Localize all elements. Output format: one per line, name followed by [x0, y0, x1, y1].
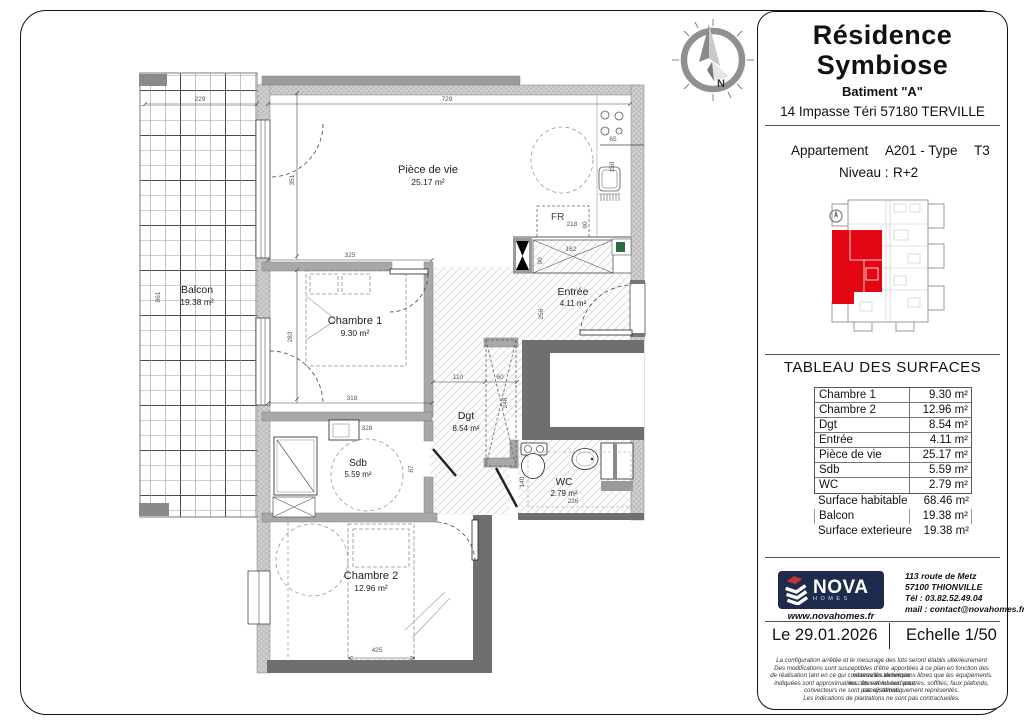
dim-318: 318: [347, 395, 358, 402]
dim-90a: 90: [537, 257, 544, 265]
dim-60: 60: [496, 374, 504, 381]
summary-value: 19.38 m²: [909, 524, 972, 539]
surface-table-body: Chambre 19.30 m² Chambre 212.96 m² Dgt8.…: [814, 387, 972, 494]
summary-row: Surface habitable68.46 m²: [814, 494, 972, 509]
green-unit-marker: [616, 242, 625, 252]
summary-value: 68.46 m²: [909, 494, 972, 509]
disclaimer-line: convecteurs ne sont pas systématiquement…: [766, 687, 997, 695]
room-area-cell: 2.79 m²: [909, 478, 971, 493]
divider: [889, 623, 890, 649]
dim-283: 283: [287, 331, 294, 342]
room-name-cell: Chambre 1: [815, 388, 909, 402]
room-name-cell: Entrée: [815, 433, 909, 447]
summary-value: 19.38 m²: [909, 509, 971, 524]
table-row: Pièce de vie25.17 m²: [815, 448, 971, 463]
room-area-piece-de-vie: 25.17 m²: [411, 177, 445, 187]
divider: [765, 125, 1000, 126]
dim-90b: 90: [582, 221, 589, 229]
divider: [765, 354, 1000, 355]
room-label-piece-de-vie: Pièce de vie: [398, 164, 458, 176]
divider: [765, 557, 1000, 558]
room-name-cell: WC: [815, 478, 909, 493]
room-name-cell: Pièce de vie: [815, 448, 909, 462]
room-area-cell: 25.17 m²: [909, 448, 971, 462]
dim-226: 226: [568, 498, 579, 505]
dim-87: 87: [408, 465, 415, 473]
table-row: Dgt8.54 m²: [815, 418, 971, 433]
room-area-cell: 4.11 m²: [909, 433, 971, 447]
room-label-sdb: Sdb: [349, 458, 367, 469]
room-area-chambre1: 9.30 m²: [341, 328, 370, 338]
dim-218: 218: [567, 221, 578, 228]
summary-label: Surface habitable: [814, 494, 909, 509]
summary-label: Balcon: [815, 509, 909, 524]
project-title-line1: Résidence: [758, 20, 1007, 51]
building-name: Batiment "A": [758, 84, 1007, 99]
technical-shaft: [513, 237, 631, 273]
level-label: Niveau :: [839, 165, 889, 180]
kitchen-fixtures: [531, 95, 644, 237]
room-label-entree: Entrée: [558, 286, 589, 298]
dim-140: 140: [519, 476, 526, 487]
level-value: R+2: [893, 165, 918, 180]
room-label-dgt: Dgt: [458, 410, 474, 422]
project-title-line2: Symbiose: [758, 50, 1007, 81]
dim-150: 150: [609, 161, 616, 172]
apartment-label: Appartement: [791, 143, 868, 158]
compass-north-letter: N: [717, 78, 725, 90]
room-area-cell: 12.96 m²: [909, 403, 971, 417]
disclaimer-line: La configuration arrêtée et le mesurage …: [766, 657, 997, 665]
dim-162: 162: [566, 246, 577, 253]
table-row: Chambre 212.96 m²: [815, 403, 971, 418]
floor-plan-svg: 729 229 325 318 328 110 60 162 218 65 22…: [0, 0, 760, 724]
dim-229: 229: [195, 96, 206, 103]
room-label-chambre1: Chambre 1: [328, 315, 382, 327]
plan-scale: Echelle 1/50: [906, 626, 997, 645]
room-area-balcon: 19.38 m²: [180, 297, 214, 307]
dim-328: 328: [362, 425, 373, 432]
brand-name: NOVA: [813, 579, 868, 596]
room-area-cell: 8.54 m²: [909, 418, 971, 432]
fridge-label: FR: [551, 212, 564, 223]
dim-325: 325: [345, 252, 356, 259]
dim-256: 256: [538, 308, 545, 319]
apartment-number: A201 - Type: [885, 143, 958, 158]
project-address: 14 Impasse Téri 57180 TERVILLE: [758, 104, 1007, 119]
table-row: Entrée4.11 m²: [815, 433, 971, 448]
dim-110: 110: [453, 374, 464, 381]
table-row: WC2.79 m²: [815, 478, 971, 493]
room-area-dgt: 8.54 m²: [452, 424, 479, 433]
dim-248: 248: [502, 397, 509, 408]
plan-sheet: 729 229 325 318 328 110 60 162 218 65 22…: [0, 0, 1024, 724]
disclaimer-line: Les indications de plantations ne sont p…: [766, 695, 997, 703]
room-label-chambre2: Chambre 2: [344, 570, 398, 582]
key-plan: [820, 190, 960, 342]
room-area-cell: 5.59 m²: [909, 463, 971, 477]
dim-351: 351: [289, 174, 296, 185]
nova-chevrons-icon: [783, 575, 809, 605]
plan-date: Le 29.01.2026: [772, 626, 878, 645]
compass-icon: N: [672, 19, 754, 101]
room-area-chambre2: 12.96 m²: [354, 583, 388, 593]
room-label-wc: WC: [556, 477, 573, 488]
room-area-sdb: 5.59 m²: [344, 470, 371, 479]
room-name-cell: Chambre 2: [815, 403, 909, 417]
room-label-balcon: Balcon: [181, 284, 213, 296]
publisher-logo: NOVA HOMES: [778, 571, 884, 609]
room-name-cell: Sdb: [815, 463, 909, 477]
publisher-email: mail : contact@novahomes.fr: [905, 604, 1024, 614]
publisher-address2: 57100 THIONVILLE: [905, 582, 982, 592]
room-area-entree: 4.11 m²: [560, 299, 587, 308]
dim-65: 65: [609, 136, 617, 143]
publisher-address1: 113 route de Metz: [905, 571, 976, 581]
summary-row: Surface exterieure19.38 m²: [814, 524, 972, 539]
dim-425: 425: [372, 647, 383, 654]
dim-861: 861: [155, 291, 162, 302]
room-area-cell: 9.30 m²: [909, 388, 971, 402]
dim-729: 729: [442, 96, 453, 103]
bathroom-fixtures: [273, 420, 403, 517]
summary-row: Balcon19.38 m²: [814, 509, 972, 524]
divider: [765, 621, 1000, 622]
surface-table-title: TABLEAU DES SURFACES: [758, 359, 1007, 376]
room-name-cell: Dgt: [815, 418, 909, 432]
table-row: Chambre 19.30 m²: [815, 388, 971, 403]
summary-label: Surface exterieure: [814, 524, 909, 539]
surface-table: Chambre 19.30 m² Chambre 212.96 m² Dgt8.…: [814, 387, 972, 539]
room-area-wc: 2.79 m²: [550, 489, 577, 498]
title-block-panel: Résidence Symbiose Batiment "A" 14 Impas…: [757, 11, 1008, 710]
publisher-phone: Tél : 03.82.52.49.04: [905, 593, 982, 603]
apartment-type: T3: [974, 143, 990, 158]
table-row: Sdb5.59 m²: [815, 463, 971, 478]
